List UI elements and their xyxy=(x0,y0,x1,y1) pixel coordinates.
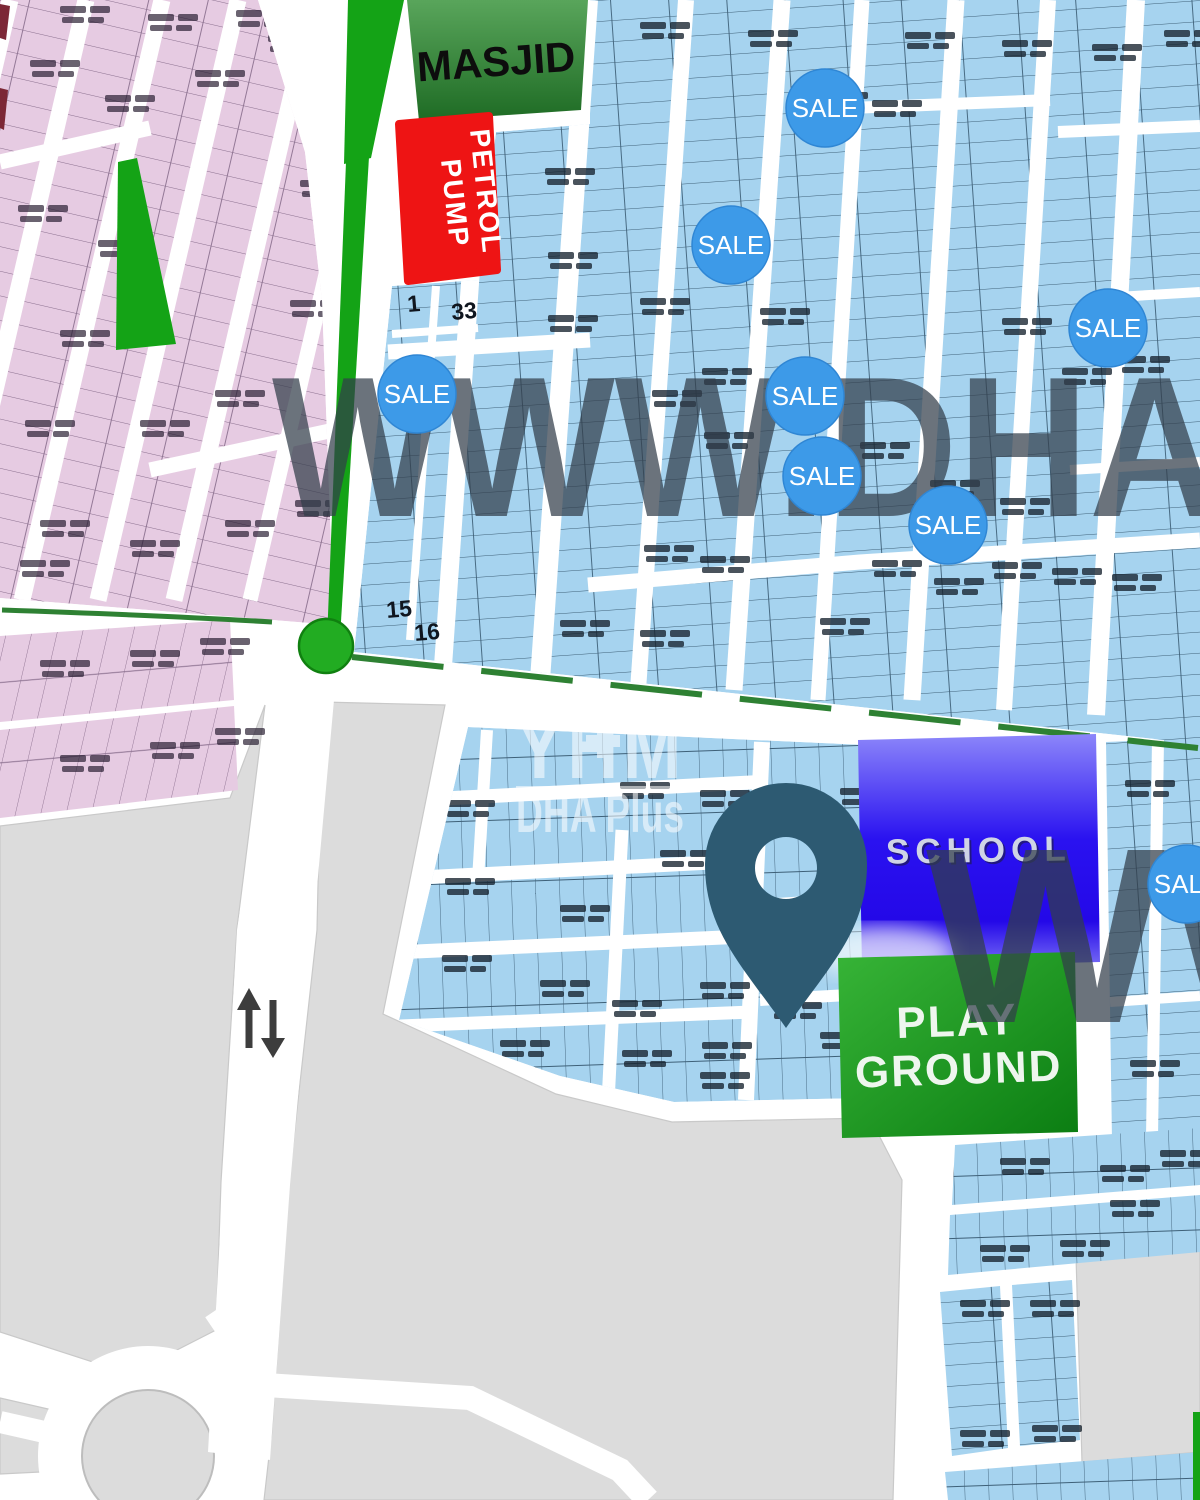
sale-badge[interactable]: SALE xyxy=(766,357,844,435)
sale-badge[interactable]: SALE xyxy=(783,437,861,515)
plot-number: 16 xyxy=(413,618,441,646)
petrol-pump-block: PETROL PUMP xyxy=(399,116,508,281)
sale-badge[interactable]: SALE xyxy=(1069,289,1147,367)
svg-text:SALE: SALE xyxy=(772,381,839,411)
green-wedge-top xyxy=(344,0,404,164)
logo-watermark: YHM DHA Plus xyxy=(516,698,686,844)
svg-text:SALE: SALE xyxy=(1075,313,1142,343)
sale-badge[interactable]: SALE xyxy=(378,355,456,433)
plot-number: 15 xyxy=(385,595,413,623)
gray-block-bottom-right xyxy=(1076,1246,1200,1462)
svg-text:SALE: SALE xyxy=(915,510,982,540)
masjid-block: MASJID xyxy=(407,0,588,121)
svg-text:SALE: SALE xyxy=(1154,869,1200,899)
pink-strip-lower xyxy=(0,620,265,818)
plot-number: 1 xyxy=(406,290,421,317)
roundabout-green xyxy=(299,619,353,673)
plot-map: MASJID PETROL PUMP SCHOOL SCHOOL PLAY GR… xyxy=(0,0,1200,1500)
svg-text:SALE: SALE xyxy=(789,461,856,491)
sale-badge[interactable]: SALE xyxy=(786,69,864,147)
svg-text:SALE: SALE xyxy=(792,93,859,123)
watermark-bottom: WW xyxy=(926,796,1200,1075)
logo-text: DHA Plus xyxy=(516,781,684,844)
svg-text:SALE: SALE xyxy=(698,230,765,260)
svg-text:SALE: SALE xyxy=(384,379,451,409)
sale-badge[interactable]: SALE xyxy=(909,486,987,564)
map-canvas[interactable]: MASJID PETROL PUMP SCHOOL SCHOOL PLAY GR… xyxy=(0,0,1200,1500)
green-sliver-right-edge xyxy=(1193,1412,1200,1500)
sale-badge[interactable]: SALE xyxy=(692,206,770,284)
plot-number: 33 xyxy=(450,297,478,325)
